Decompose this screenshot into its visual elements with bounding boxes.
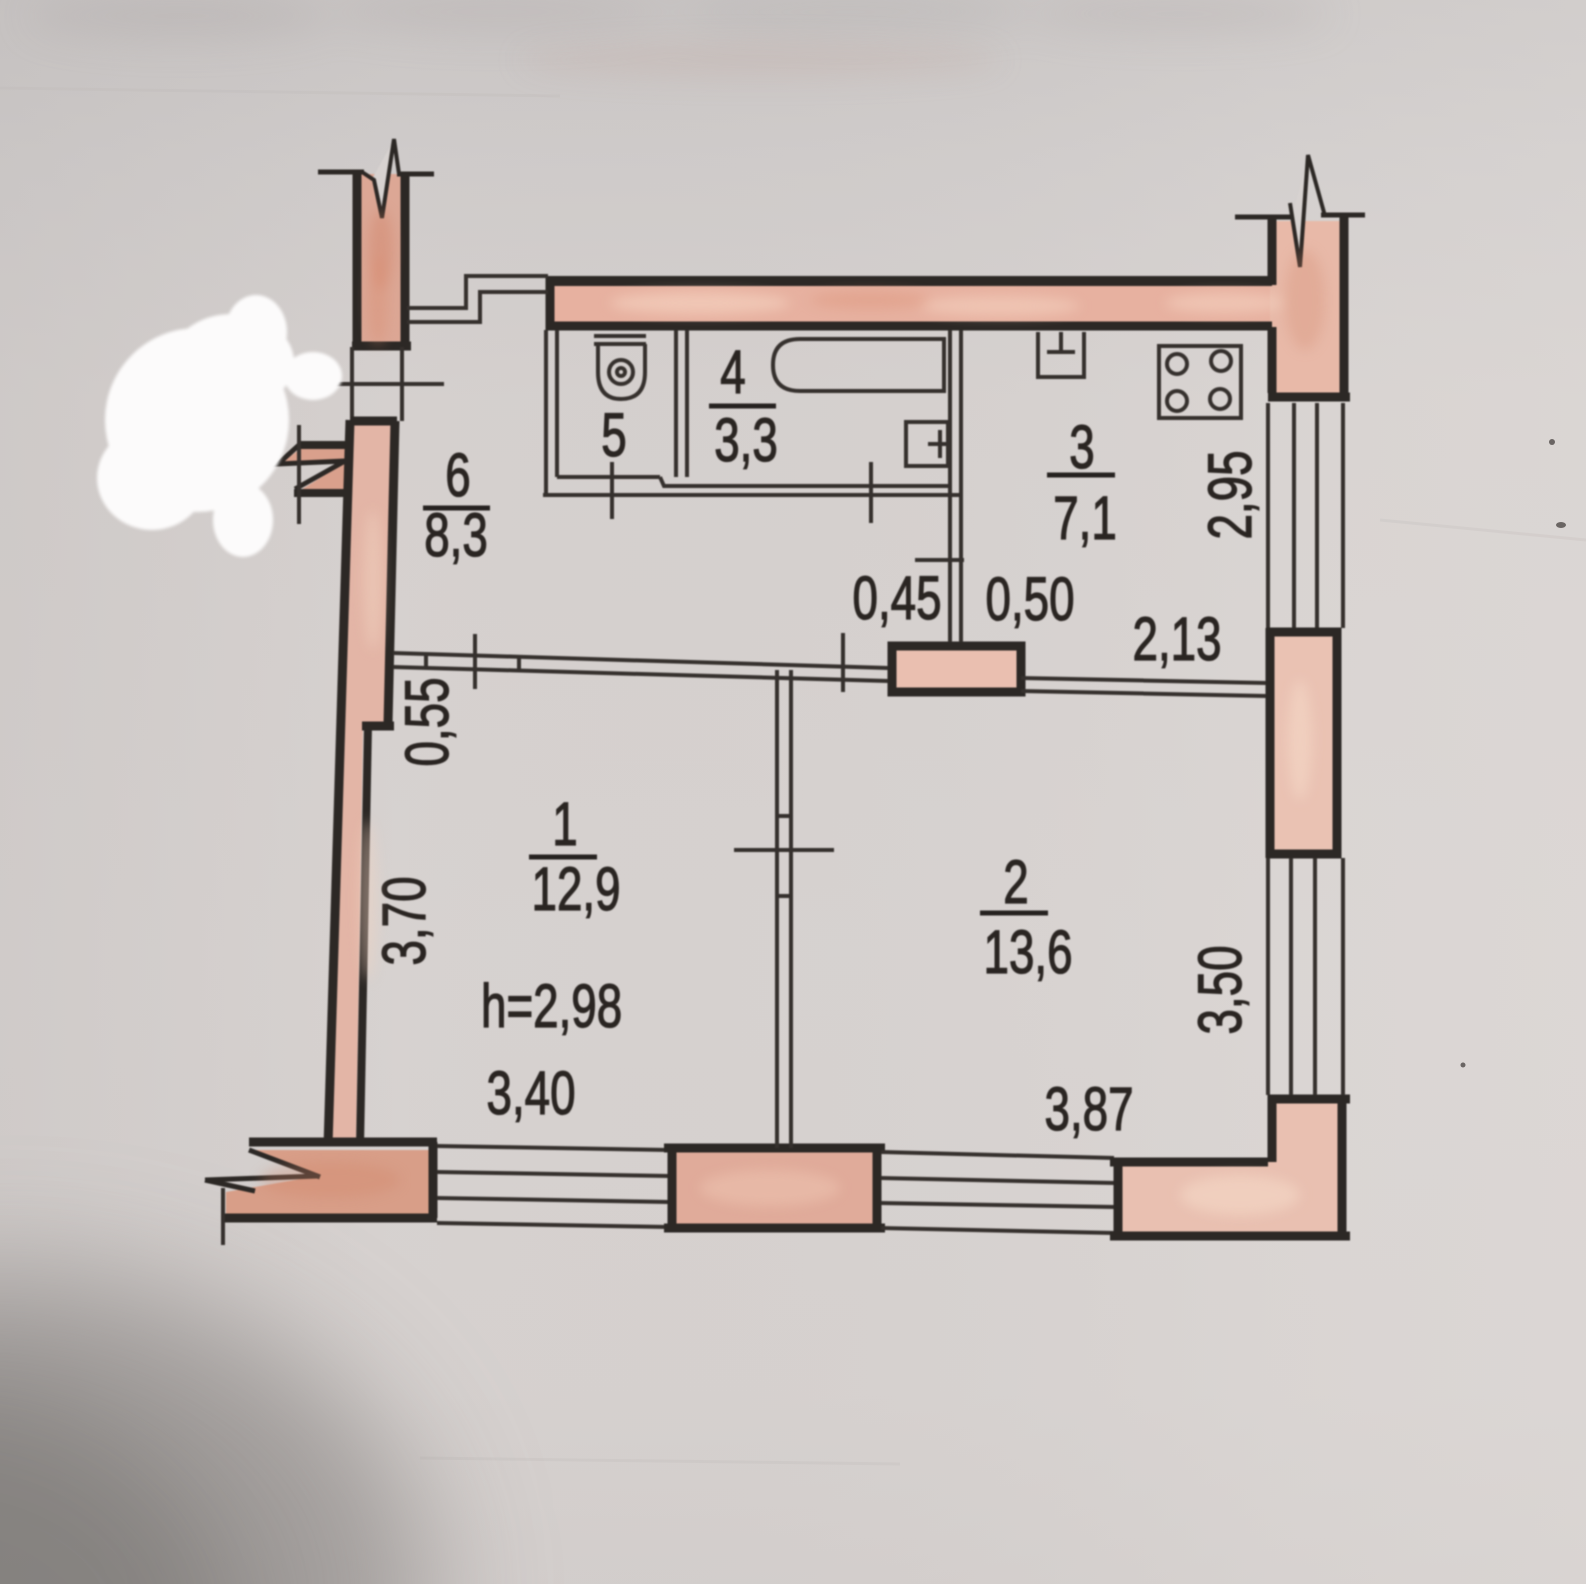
svg-text:13,6: 13,6 — [984, 919, 1073, 987]
svg-text:3,40: 3,40 — [487, 1060, 576, 1128]
svg-text:5: 5 — [601, 402, 626, 470]
svg-text:3: 3 — [1069, 414, 1094, 482]
svg-text:3,50: 3,50 — [1187, 945, 1255, 1034]
svg-text:2: 2 — [1003, 849, 1028, 917]
svg-text:12,9: 12,9 — [532, 856, 621, 924]
svg-text:8,3: 8,3 — [424, 502, 488, 570]
svg-text:3,87: 3,87 — [1045, 1076, 1134, 1144]
svg-text:0,55: 0,55 — [394, 677, 462, 766]
svg-text:0,50: 0,50 — [986, 566, 1075, 634]
svg-text:2,95: 2,95 — [1197, 450, 1265, 539]
svg-text:6: 6 — [445, 442, 470, 510]
svg-text:1: 1 — [552, 791, 577, 859]
svg-text:4: 4 — [720, 339, 745, 407]
svg-text:3,3: 3,3 — [714, 407, 778, 475]
svg-text:2,13: 2,13 — [1133, 606, 1222, 674]
svg-text:h=2,98: h=2,98 — [481, 973, 622, 1041]
svg-text:3,70: 3,70 — [371, 876, 439, 965]
svg-text:7,1: 7,1 — [1053, 485, 1117, 553]
svg-text:0,45: 0,45 — [853, 565, 942, 633]
